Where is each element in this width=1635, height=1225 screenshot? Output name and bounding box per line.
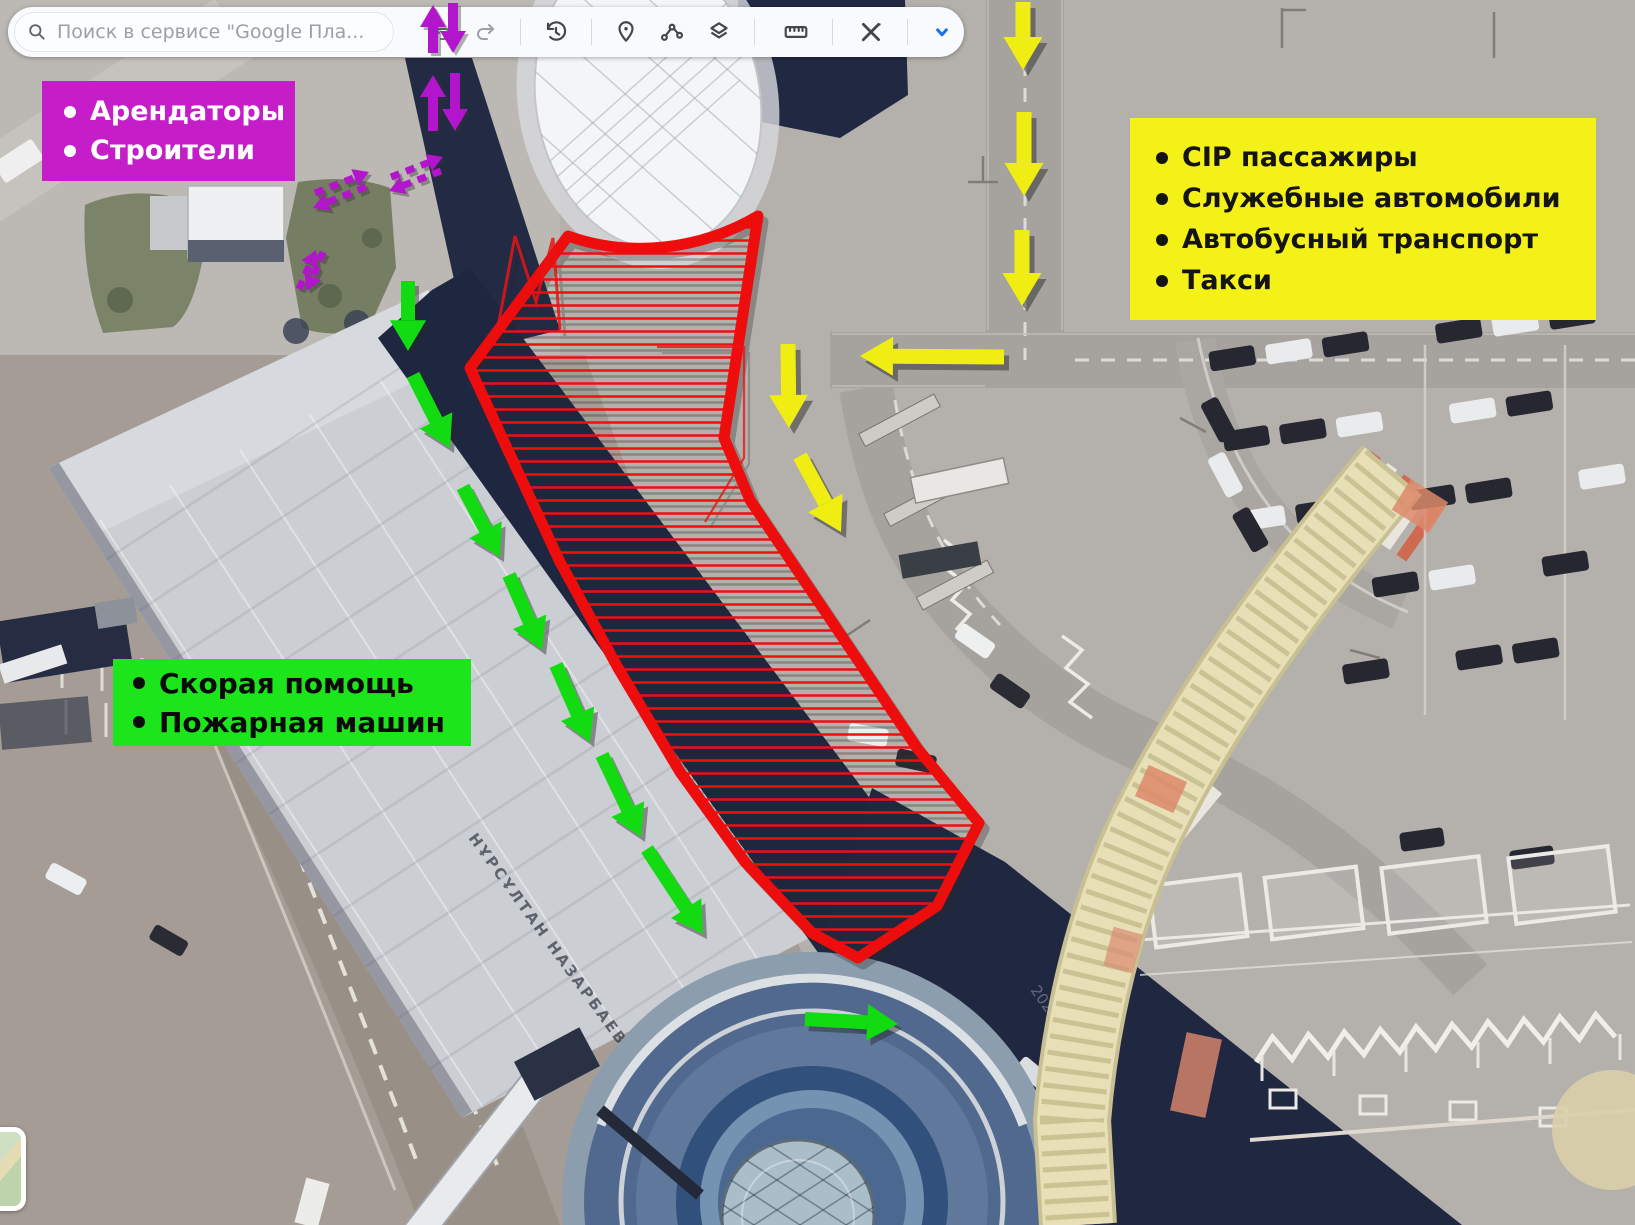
legend-item-label: Автобусный транспорт xyxy=(1182,224,1538,255)
annotate-tools-button[interactable] xyxy=(854,15,888,49)
legend-item: Арендаторы xyxy=(64,96,295,127)
bullet-icon xyxy=(133,677,145,689)
drawing-tools-icon xyxy=(858,19,884,45)
legend-item: Служебные автомобили xyxy=(1156,183,1596,214)
legend-tenants: Арендаторы Строители xyxy=(42,81,295,181)
path-icon xyxy=(659,19,685,45)
bullet-icon xyxy=(64,145,76,157)
legend-item: Пожарная машин xyxy=(133,706,471,739)
toolbar: Поиск в сервисе "Google Пла... xyxy=(8,7,964,57)
legend-item-label: Служебные автомобили xyxy=(1182,183,1561,214)
bullet-icon xyxy=(133,716,145,728)
legend-item: Автобусный транспорт xyxy=(1156,224,1596,255)
chevron-down-icon xyxy=(929,19,955,45)
undo-icon xyxy=(431,20,455,44)
legend-item: Скорая помощь xyxy=(133,667,471,700)
toolbar-divider xyxy=(832,19,833,45)
bullet-icon xyxy=(1156,234,1168,246)
undo-button[interactable] xyxy=(426,15,460,49)
measure-button[interactable] xyxy=(779,15,813,49)
redo-button[interactable] xyxy=(468,15,502,49)
layers-icon xyxy=(706,19,732,45)
bullet-icon xyxy=(64,106,76,118)
legend-item-label: Строители xyxy=(90,135,255,166)
legend-item-label: CIP пассажиры xyxy=(1182,142,1418,173)
search-icon xyxy=(27,22,47,42)
layers-button[interactable] xyxy=(702,15,736,49)
legend-emergency: Скорая помощь Пожарная машин xyxy=(113,659,471,746)
bullet-icon xyxy=(1156,275,1168,287)
legend-item-label: Скорая помощь xyxy=(159,667,414,700)
legend-item-label: Арендаторы xyxy=(90,96,285,127)
legend-item: Строители xyxy=(64,135,295,166)
toolbar-divider xyxy=(754,19,755,45)
search-placeholder: Поиск в сервисе "Google Пла... xyxy=(57,21,364,43)
redo-icon xyxy=(473,20,497,44)
map-style-widget[interactable] xyxy=(0,1127,26,1211)
history-icon xyxy=(543,19,569,45)
collapse-toolbar-button[interactable] xyxy=(925,15,959,49)
legend-item: Такси xyxy=(1156,265,1596,296)
toolbar-divider xyxy=(907,19,908,45)
legend-item-label: Такси xyxy=(1182,265,1272,296)
bullet-icon xyxy=(1156,193,1168,205)
legend-cip: CIP пассажиры Служебные автомобили Автоб… xyxy=(1130,118,1596,320)
toolbar-divider xyxy=(591,19,592,45)
add-placemark-button[interactable] xyxy=(609,15,643,49)
reset-view-button[interactable] xyxy=(539,15,573,49)
map-style-thumbnail xyxy=(0,1132,21,1206)
legend-item: CIP пассажиры xyxy=(1156,142,1596,173)
bullet-icon xyxy=(1156,152,1168,164)
google-earth-window: НҰРСҰЛТАН НАЗАРБАЕВ xyxy=(0,0,1635,1225)
ruler-icon xyxy=(783,19,809,45)
search-input[interactable]: Поиск в сервисе "Google Пла... xyxy=(14,12,394,52)
legend-item-label: Пожарная машин xyxy=(159,706,445,739)
draw-path-button[interactable] xyxy=(655,15,689,49)
placemark-icon xyxy=(613,19,639,45)
tree-shadow xyxy=(283,318,309,344)
toolbar-divider xyxy=(520,19,521,45)
